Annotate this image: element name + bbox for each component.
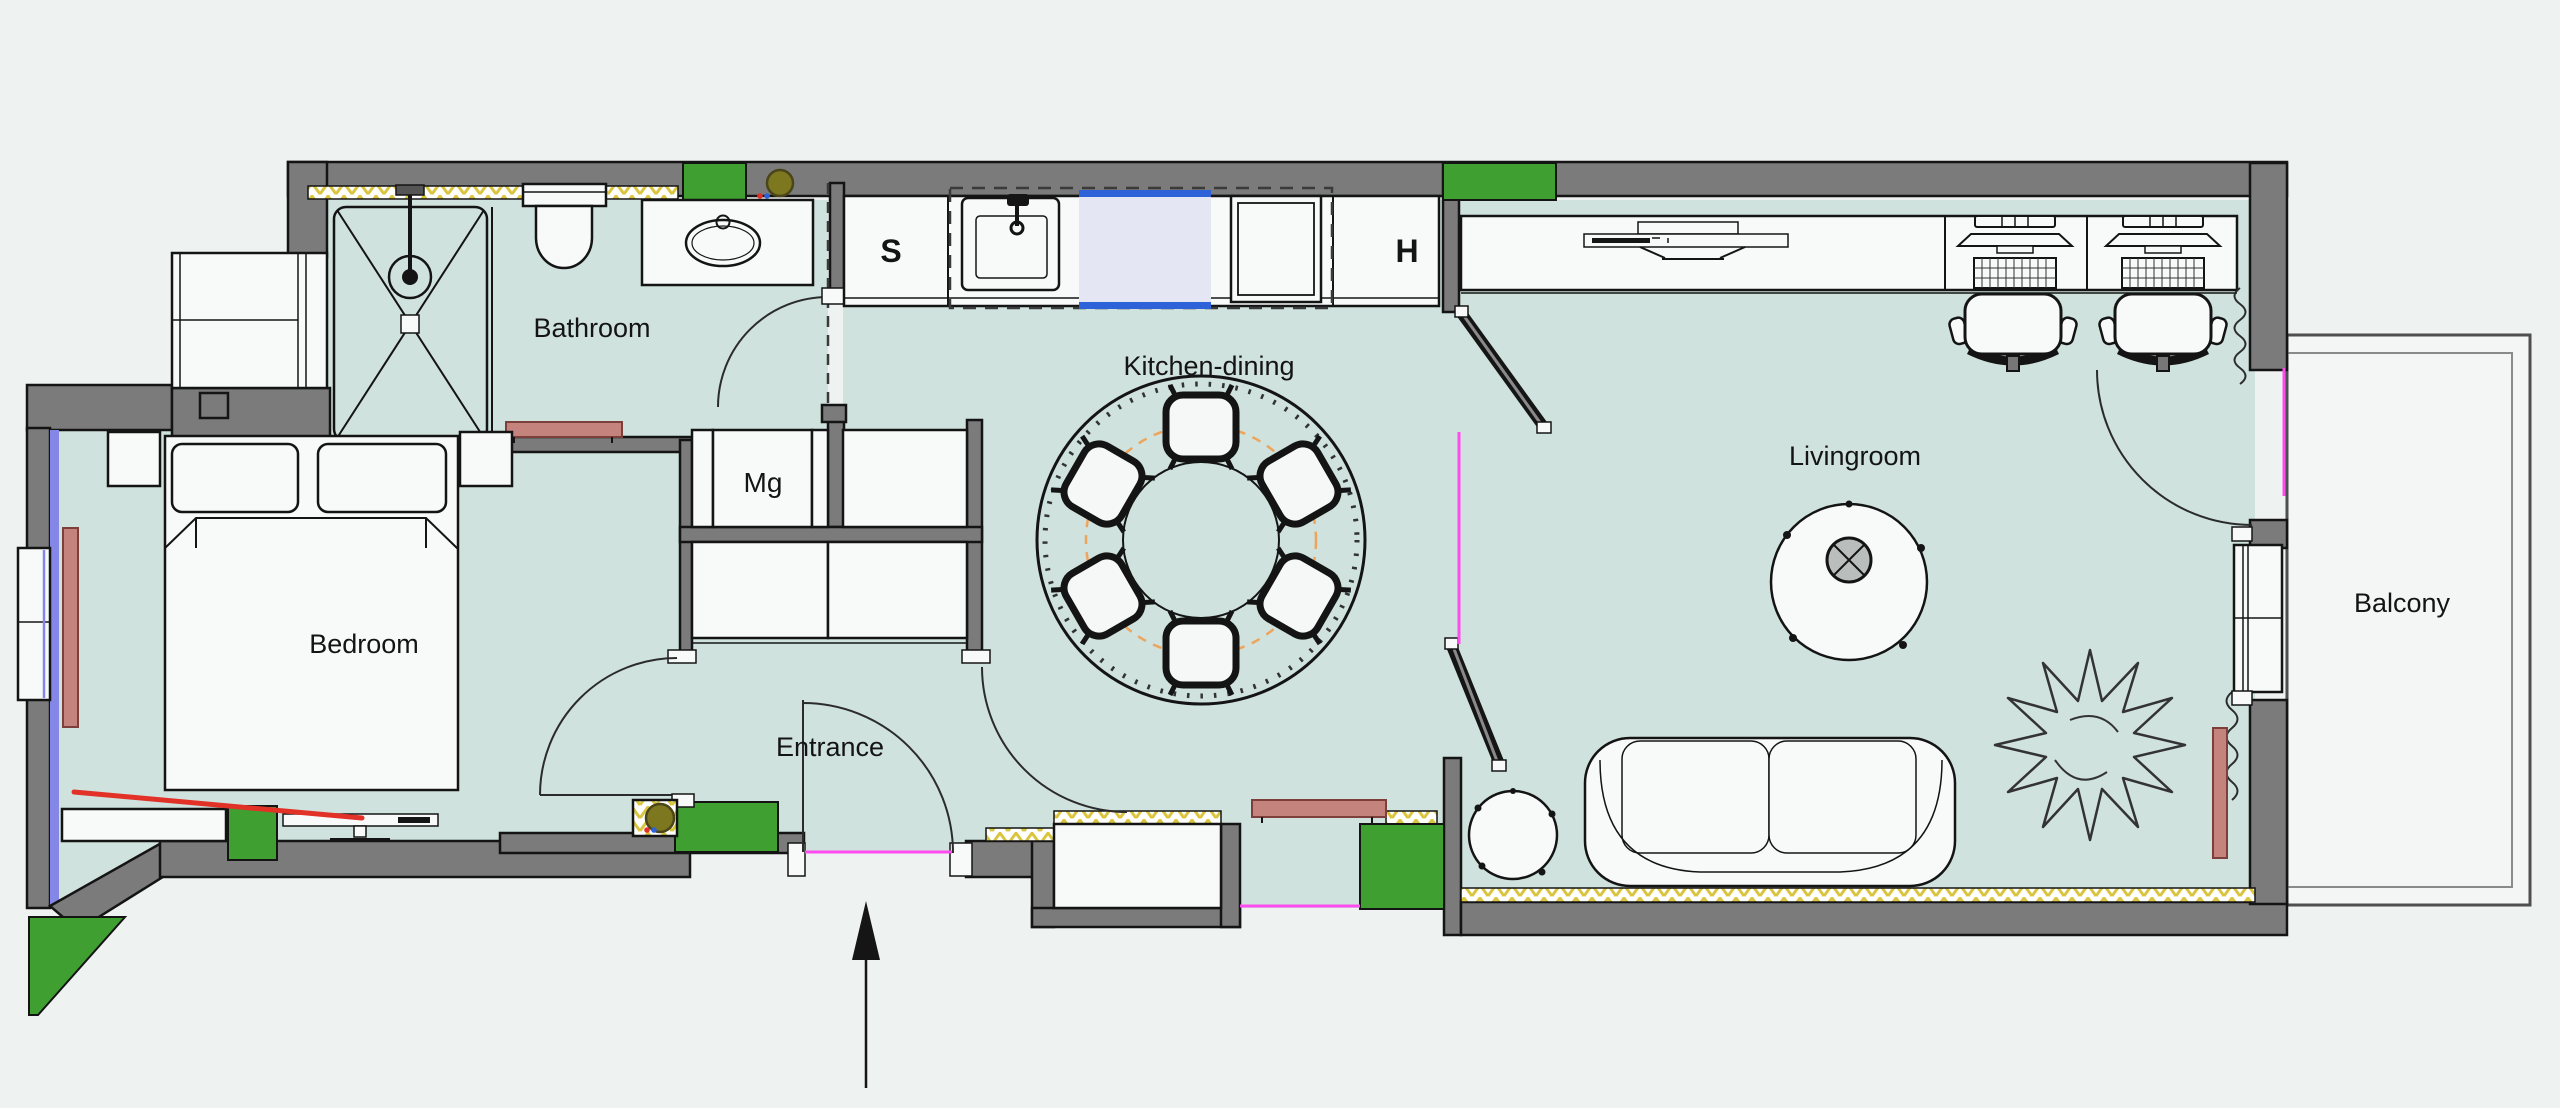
green-cabinet-vestibule [1360,824,1444,909]
pillow [172,444,298,512]
kitchen-cabinet-s-label: S [880,233,901,269]
living-counter [1461,216,2237,290]
boiler-niche [633,800,677,836]
balcony-window [2232,527,2282,705]
bed [165,436,458,790]
dining-chair [1166,385,1236,469]
green-shoe-cabinet-entrance [675,802,778,852]
storage-block: Mg [668,430,990,663]
window-niche [1054,824,1221,908]
sofa [1585,738,1955,886]
kitchen-sink [962,194,1059,290]
green-cabinet-bedroom [228,806,277,860]
living-radiator [2213,728,2227,858]
nightstand-right [460,432,512,486]
boiler-top [767,170,793,196]
pillow [318,444,446,512]
column [200,393,228,418]
kitchen-cabinet-h-label: H [1395,233,1418,269]
nightstand-left [108,432,160,486]
fridge-mg-label: Mg [744,467,783,498]
bedroom-label: Bedroom [309,629,419,659]
balcony: Balcony [2287,335,2530,905]
entry-arrow [852,901,880,1088]
balcony-label: Balcony [2354,588,2451,618]
green-cabinet-top-kitchen [1443,163,1556,200]
floor-plan-canvas: Balcony [0,0,2560,1108]
wardrobe-left [692,542,828,638]
bedroom-wall-finish-strip [50,430,59,907]
floor-plan-drawing: Balcony [0,0,2560,1108]
stove [1231,196,1321,302]
vestibule-floor [1240,813,1360,908]
bathroom-radiator [506,422,622,437]
bedroom-radiator [63,528,78,727]
window-bay-bedroom [18,548,50,700]
shower-arm-bracket [396,185,424,195]
green-cabinet-top-bathroom [683,163,746,200]
dining-chair [1166,611,1236,695]
bedroom-shelf [62,809,226,841]
vanity-sink [642,200,813,285]
window-bay-bathroom [172,253,327,388]
green-planter-triangle [29,917,125,1015]
livingroom-label: Livingroom [1789,441,1921,471]
dishwasher-panel [1079,190,1211,309]
bathroom-label: Bathroom [533,313,650,343]
wardrobe-right [828,542,967,638]
entrance-label: Entrance [776,732,884,762]
